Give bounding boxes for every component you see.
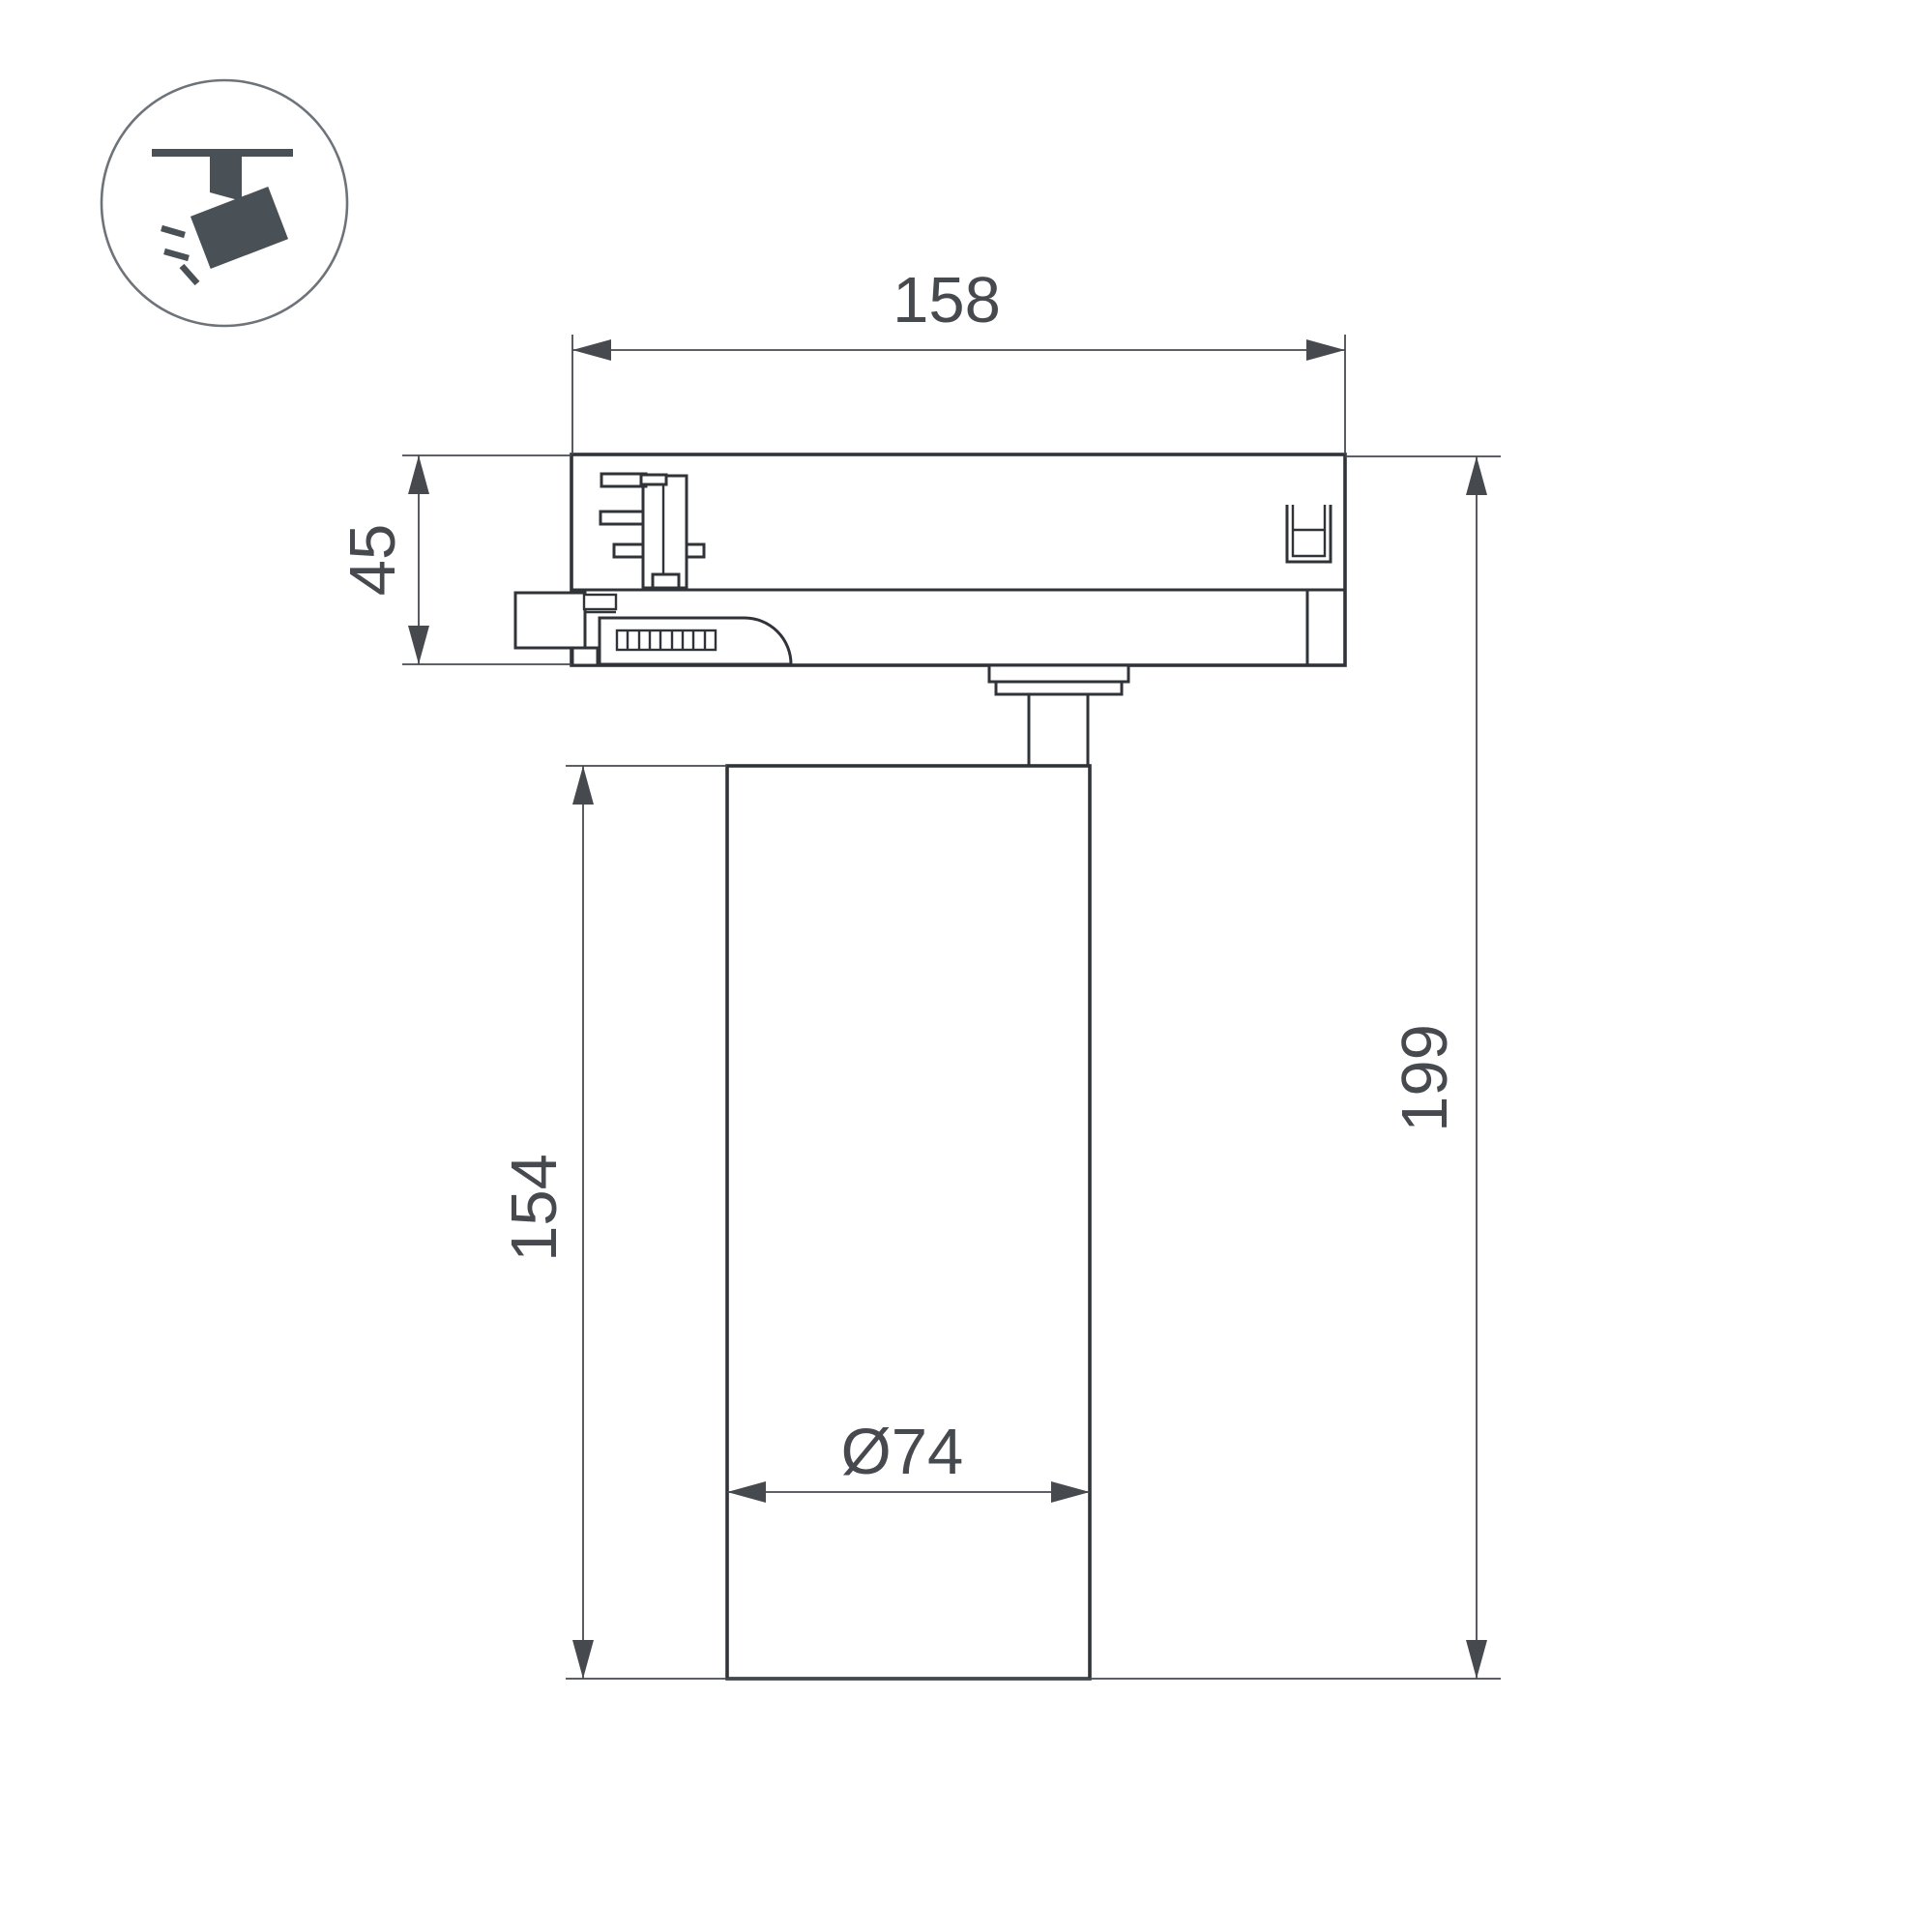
dimension-body-height-154: 154 <box>498 766 727 1679</box>
contact-prong-low <box>614 544 643 557</box>
adjust-slider <box>600 618 791 664</box>
track-adapter <box>515 454 1345 665</box>
contact-slab <box>643 476 687 588</box>
contact-cap <box>641 475 666 484</box>
lamp-body <box>727 766 1090 1679</box>
arrowhead-up <box>572 766 594 805</box>
arrowhead-up <box>408 455 429 494</box>
swivel-joint <box>989 665 1128 766</box>
contact-prong-mid <box>600 512 643 524</box>
dim-diameter-label: Ø74 <box>841 1416 964 1488</box>
arrowhead-down <box>572 1640 594 1679</box>
dim-overall-height-label: 199 <box>1389 1024 1461 1132</box>
arrowhead-right <box>1306 339 1345 361</box>
product-type-badge <box>102 80 347 326</box>
arrowhead-left <box>572 339 611 361</box>
joint-flange-upper <box>989 665 1128 682</box>
joint-flange-lower <box>996 682 1122 694</box>
lever-latch <box>584 595 616 609</box>
dim-adapter-height-label: 45 <box>337 524 409 597</box>
lamp-cylinder <box>727 766 1090 1679</box>
contact-notch <box>687 544 704 557</box>
technical-drawing-canvas: 158 45 154 199 Ø74 <box>0 0 1932 1932</box>
arrowhead-down <box>1466 1640 1487 1679</box>
dim-body-height-label: 154 <box>498 1154 571 1262</box>
dim-width-label: 158 <box>893 264 1001 337</box>
arrowhead-down <box>408 626 429 664</box>
dimension-width-158: 158 <box>572 264 1345 454</box>
slider-grip <box>617 630 716 650</box>
lever-step <box>572 648 598 665</box>
dimension-drawing-page: 158 45 154 199 Ø74 <box>0 0 1932 1932</box>
badge-circle <box>102 80 347 326</box>
lever-block <box>515 593 585 648</box>
track-rail-glyph <box>152 149 293 157</box>
arrowhead-up <box>1466 456 1487 495</box>
contact-prong-top <box>601 474 646 486</box>
contact-foot <box>653 574 679 588</box>
